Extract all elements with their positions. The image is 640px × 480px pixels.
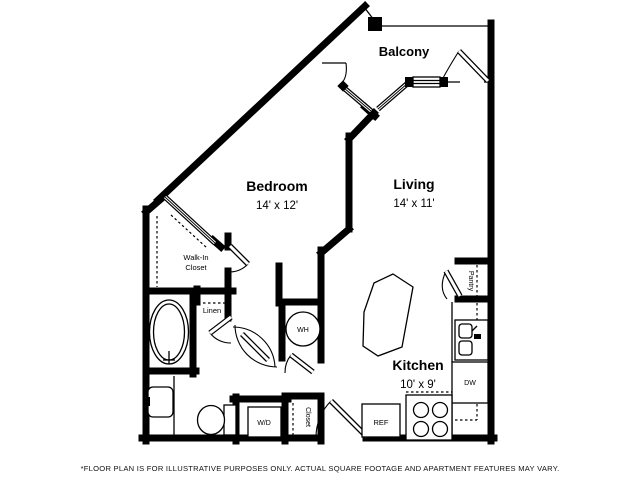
pantry-door: [442, 271, 460, 299]
walk-in-closet-label-line2: Closet: [185, 263, 207, 272]
disclaimer-text: *FLOOR PLAN IS FOR ILLUSTRATIVE PURPOSES…: [81, 464, 560, 473]
water-heater: WH: [286, 312, 320, 346]
kitchen-sink: [455, 320, 488, 360]
window-horizontal: [413, 77, 440, 87]
toilet-icon: [198, 405, 237, 435]
floor-plan: DW REF W/D WH Balcony Bedroom 14' x 12': [0, 0, 640, 480]
entry-closet-label: Closet: [304, 407, 311, 427]
dishwasher-label: DW: [464, 380, 476, 387]
water-heater-closet-door: [285, 355, 313, 373]
bedroom-label: Bedroom: [246, 178, 307, 194]
water-heater-label: WH: [297, 327, 309, 334]
window-angled-right: [378, 83, 408, 109]
linen-door: [210, 317, 231, 343]
balcony-windows: [337, 77, 448, 111]
balcony-corner-post: [368, 17, 382, 31]
window-angled-left: [344, 88, 371, 111]
floor-plan-page: DW REF W/D WH Balcony Bedroom 14' x 12': [0, 0, 640, 480]
living-balcony-door: [441, 51, 488, 82]
interior-walls: [146, 107, 491, 441]
bedroom-dimensions: 14' x 12': [256, 200, 298, 212]
refrigerator-label: REF: [374, 418, 389, 427]
kitchen-dimensions: 10' x 9': [400, 379, 436, 391]
bathtub-icon: [150, 300, 189, 364]
linen-label: Linen: [203, 306, 221, 315]
living-label: Living: [393, 176, 434, 192]
balcony-label: Balcony: [379, 44, 430, 59]
stove-icon: [406, 395, 452, 440]
kitchen-island: [363, 274, 413, 356]
closet-partition: [165, 197, 215, 243]
refrigerator: REF: [362, 404, 400, 437]
washer-dryer: W/D: [248, 407, 281, 437]
pantry-label: Pantry: [467, 271, 474, 292]
dishwasher: DW: [452, 362, 488, 403]
walk-in-closet-label-line1: Walk-In: [183, 253, 208, 262]
washer-dryer-label: W/D: [257, 420, 271, 427]
kitchen-label: Kitchen: [392, 357, 443, 373]
bedroom-door: [233, 327, 275, 367]
walk-in-closet-door: [230, 246, 248, 272]
living-dimensions: 14' x 11': [393, 198, 434, 210]
bedroom-balcony-door: [340, 63, 346, 85]
